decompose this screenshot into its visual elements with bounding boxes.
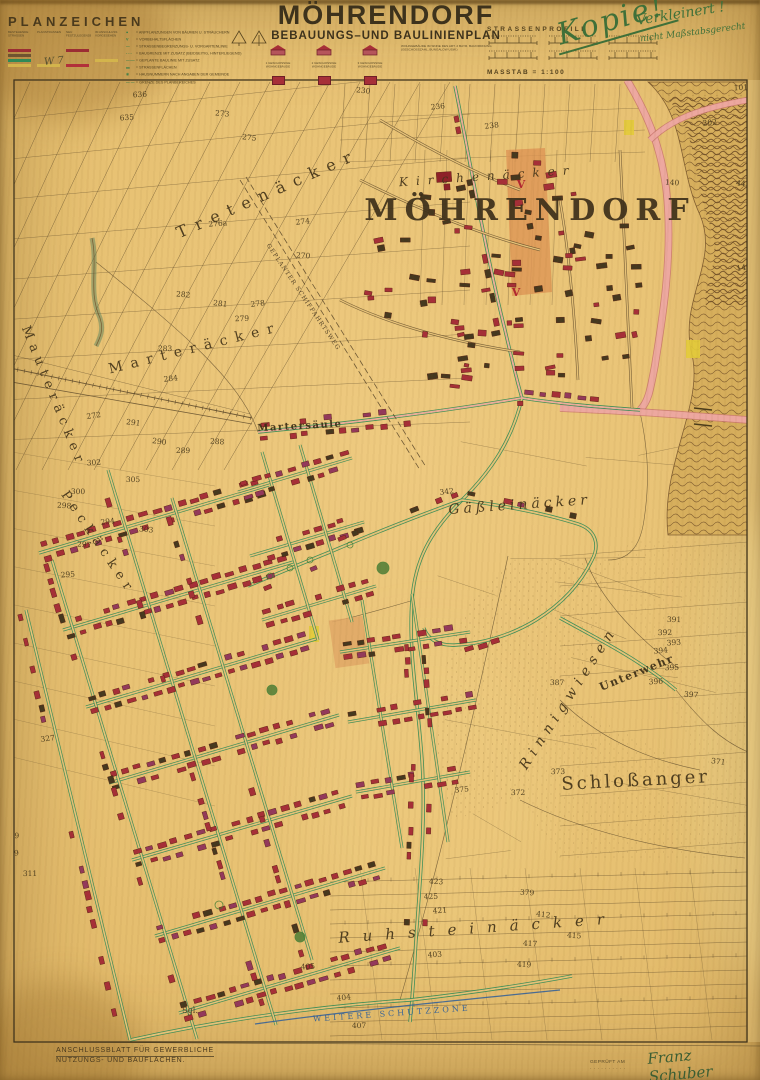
parcel-number: 294 [100,516,116,527]
parcel-number: 404 [336,992,351,1002]
legend-line: ⑥= HAUSNUMMERN NACH ANGABEN DER GEMEINDE [126,73,269,77]
parcel-number: 396 [648,677,663,687]
legend-column-label: NEU FESTZULEGENDE [66,31,91,39]
legend-line: - - -= BAUGRENZE MIT ZUSATZ (BEIDSEITIG,… [126,52,269,56]
legend-swatch [8,49,31,52]
parcel-number: 283 [158,344,173,353]
parcel-number: 236 [430,101,445,111]
parcel-number: 311 [23,869,37,878]
legend-swatch [66,64,89,67]
legend-column: NEU FESTZULEGENDE [66,31,91,69]
house-icon-caption: 3 GESCHOSSIGE WOHNGEBÄUDE [348,62,393,69]
parcel-number: 291 [126,417,141,428]
parcel-number: 305 [126,475,141,484]
building-symbols-row: 1 GESCHOSSIGE WOHNGEBÄUDE2 GESCHOSSIGE W… [255,44,515,78]
parcel-number: 275 [242,132,258,143]
red-v-mark: V [511,286,521,299]
place-label: Marteräcker [107,319,283,377]
building-symbol-group: 3 GESCHOSSIGE WOHNGEBÄUDE [347,44,393,85]
legend-line: — —= GRENZE DES PLANBEREICHES [126,81,269,85]
parcel-number: 230 [356,85,371,96]
parcel-number: 140 [665,178,680,188]
house-icon [314,44,334,57]
parcel-number: 278 [250,298,265,309]
legend-column-label: BESTEHENDE STRASSEN [8,31,33,39]
title-block: PLANZEICHEN BESTEHENDE STRASSENPLANSTRAS… [0,0,760,80]
parcel-number: 412 [536,909,552,920]
legend-line: ▬= STRASSENFLÄCHEN [126,66,269,70]
map-canvas: MÖHRENDORFKirchenäckerTretenäckerMauterä… [0,0,760,1080]
place-label: Tretenäcker [173,144,362,242]
parcel-number: 302 [87,458,102,468]
red-v-mark: V [516,178,526,191]
parcel-number: 289 [176,446,191,455]
sheet-margin [748,80,760,1042]
legend-column: IM ANSCHLUSS VORGESEHEN [95,31,120,69]
building-symbol-group: 1 GESCHOSSIGE WOHNGEBÄUDE [255,44,301,85]
parcel-number: 379 [520,888,535,898]
parcel-number: 290 [152,436,168,447]
storey-square-icon [272,76,285,85]
plan-title: MÖHRENDORF BEBAUUNGS–UND BAULINIENPLAN [252,2,520,42]
legend-line-symbol: - - - [126,52,136,56]
street-profile-diagram [489,36,537,45]
footer-note-line1: ANSCHLUSSBLATT FÜR GEWERBLICHE [56,1047,214,1057]
parcel-number: 373 [551,767,566,776]
parcel-number: 403 [427,949,442,959]
legend-line-symbol: V [126,38,136,42]
legend-column: BESTEHENDE STRASSEN [8,31,33,69]
legend-swatch [95,54,118,57]
legend-line-text: = STRASSENBEGRENZUNGS- U. VORGARTENLINIE [136,45,228,49]
parcel-number: 635 [119,113,134,123]
parcel-number: 392 [658,628,673,637]
legend-line-symbol: ▬ [126,66,136,70]
house-icon [268,44,288,57]
footer-note-line2: NUTZUNGS- UND BAUFLÄCHEN. [56,1057,185,1064]
legend-line-text: = GEPLANTE BAULINIE MIT ZUSATZ [136,59,200,63]
legend-line-symbol: — [126,45,136,49]
legend-swatch [66,54,89,57]
legend-swatch [8,59,31,62]
parcel-number: 329 [5,831,20,840]
storey-square-icon [364,76,377,85]
parcel-number: 387 [550,678,565,687]
parcel-number: 238 [484,120,500,131]
parcel-number: 295 [60,570,75,580]
legend-line-symbol: — — [126,81,136,85]
parcel-number: 272 [86,410,102,421]
parcel-number: 375 [454,784,469,795]
parcel-number: 274 [295,216,310,226]
building-symbol-group: 2 GESCHOSSIGE WOHNGEBÄUDE [301,44,347,85]
legend-swatch [95,59,118,62]
parcel-number: 371 [711,756,726,767]
place-label: Ruhsteinäcker [337,909,618,946]
parcel-number: 279 [235,314,250,323]
place-label: MÖHRENDORF [364,191,695,228]
parcel-number: 407 [352,1021,367,1030]
storey-square-icon [318,76,331,85]
parcel-number: 309 [4,848,20,859]
house-icon [360,44,380,57]
legend-line-symbol: ⑥ [126,73,136,77]
legend-column-label: PLANSTRASSEN [37,31,62,39]
parcel-number: 394 [653,645,668,655]
legend-column-label: IM ANSCHLUSS VORGESEHEN [95,31,120,39]
parcel-number: 270 [296,251,311,261]
street-profile-diagram [489,51,537,60]
parcel-number: 281 [213,298,228,309]
legend-line-text: = STRASSENFLÄCHEN [136,66,177,70]
parcel-number: 282 [176,289,191,299]
legend-swatch [66,49,89,52]
page-subtitle: BEBAUUNGS–UND BAULINIENPLAN [252,30,520,42]
footer-note: ANSCHLUSSBLATT FÜR GEWERBLICHE NUTZUNGS-… [56,1047,214,1066]
parcel-number: 421 [432,906,447,916]
parcel-number: 395 [665,663,680,673]
street-profile-diagram [549,51,597,60]
legend-line: —·—= GEPLANTE BAULINIE MIT ZUSATZ [126,59,269,63]
legend-line-text: = HAUSNUMMERN NACH ANGABEN DER GEMEINDE [136,73,229,77]
parcel-number: 417 [523,939,538,949]
approval-stamp: GEPRÜFT AM · · · · · · · · · · [590,1060,626,1072]
street-profile-diagram [609,51,657,60]
parcel-number: 419 [517,960,532,970]
parcel-number: 273 [215,108,230,118]
legend-line-symbol: ● [126,31,136,35]
parcel-number: 405 [300,962,315,972]
stamp-line2: · · · · · · · · · · [590,1066,626,1071]
place-label: Sgl. [182,1006,198,1015]
legend-title: PLANZEICHEN [8,14,260,29]
house-icon-caption: 2 GESCHOSSIGE WOHNGEBÄUDE [302,62,347,69]
legend-swatch [8,64,31,67]
map-sheet: MÖHRENDORFKirchenäckerTretenäckerMauterä… [0,0,760,1080]
stamp-line1: GEPRÜFT AM [590,1060,625,1065]
house-icon-caption: 1 GESCHOSSIGE WOHNGEBÄUDE [256,62,301,69]
parcel-number: 101 [733,83,748,93]
parcel-number: 300 [71,487,86,496]
page-title: MÖHRENDORF [252,2,520,29]
legend-handwritten-mark: W 7 [43,55,64,68]
parcel-number: 284 [163,373,178,384]
scale-label: MASSTAB = 1:100 [487,69,663,76]
legend-swatch [95,49,118,52]
legend-planzeichen: PLANZEICHEN BESTEHENDE STRASSENPLANSTRAS… [8,14,260,31]
legend-swatch [8,54,31,57]
parcel-number: 425 [424,892,439,902]
parcel-number: 415 [567,931,582,941]
parcel-number: 397 [684,689,699,699]
legend-line-symbol: —·— [126,59,136,63]
parcel-number: 372 [511,788,526,797]
legend-line-text: = VORBEHALTSFLÄCHEN [136,38,181,42]
legend-line-text: = ANPFLANZUNGEN VON BÄUMEN U. STRÄUCHERN [136,31,230,35]
parcel-number: 393 [666,637,681,647]
parcel-number: 276a [208,218,228,228]
parcel-number: 288 [210,437,225,447]
parcel-number: 636 [132,90,147,100]
parcel-number: 391 [667,615,682,624]
parcel-number: 423 [429,877,444,887]
legend-swatch [37,49,60,52]
legend-line-text: = GRENZE DES PLANBEREICHES [136,81,196,85]
parcel-number: 303 [139,524,154,534]
parcel-number: 297 [77,539,92,549]
parcel-number: 342 [439,486,455,497]
parcel-number: 327 [40,733,56,744]
legend-line-text: = BAUGRENZE MIT ZUSATZ (BEIDSEITIG, HINT… [136,52,242,56]
parcel-number: 202 [702,117,717,127]
legend-swatch [66,59,89,62]
parcel-number: 298 [57,501,72,511]
